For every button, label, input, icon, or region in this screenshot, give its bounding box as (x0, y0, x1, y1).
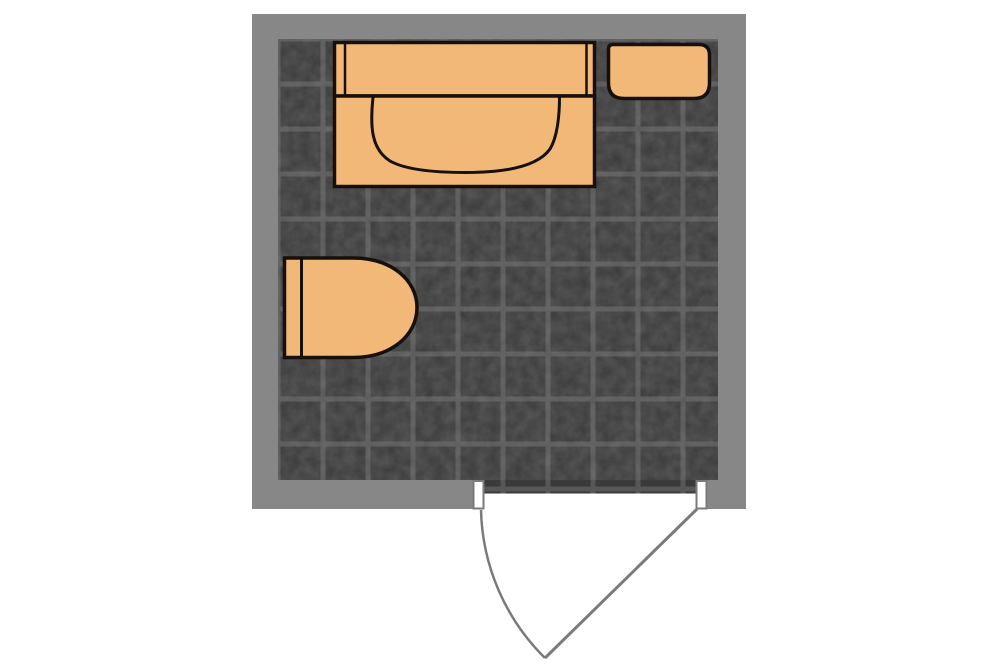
door-jamb-right (697, 481, 707, 509)
bathtub[interactable] (335, 43, 595, 187)
toilet[interactable] (285, 258, 418, 358)
floor-plan-svg (0, 0, 1000, 667)
floor-plan-canvas (0, 0, 1000, 667)
door[interactable] (481, 509, 697, 658)
door-jamb-left (474, 481, 484, 509)
door-leaf[interactable] (545, 509, 697, 658)
toilet-bowl[interactable] (285, 258, 418, 358)
door-threshold (484, 480, 697, 494)
bathtub-deck[interactable] (335, 43, 595, 97)
sink[interactable] (609, 45, 710, 99)
door-swing-arc (481, 510, 545, 658)
door-opening (484, 494, 697, 511)
